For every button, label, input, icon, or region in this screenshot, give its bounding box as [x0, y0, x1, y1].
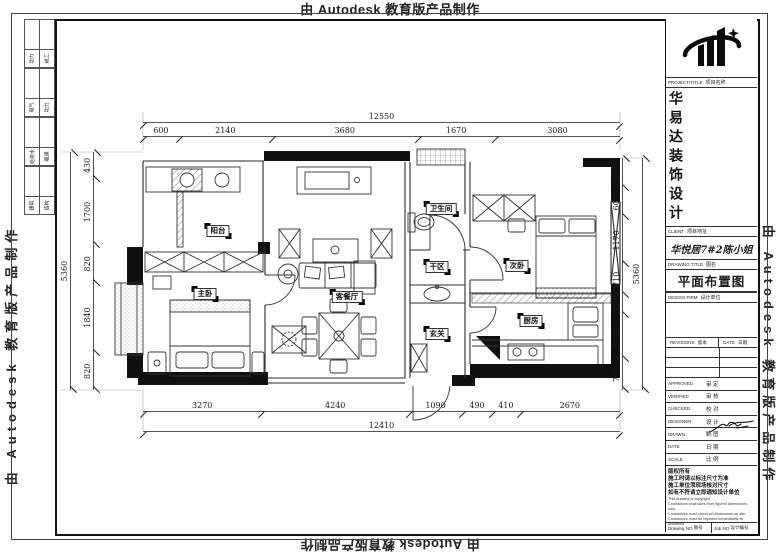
dim-segment: 600	[143, 124, 179, 137]
dim-right-segments: 710 1040 220 710 1170 600 670	[610, 158, 623, 390]
dim-segment: 1670	[418, 124, 495, 137]
design-firm-label: DESIGN FIRM设计单位	[666, 292, 757, 303]
dim-top-segments: 600 2140 3680 1670 3080	[143, 124, 620, 137]
dim-segment: 12410	[143, 419, 620, 432]
dim-segment: 2140	[179, 124, 272, 137]
dim-segment: 3680	[272, 124, 418, 137]
dim-segment: 2670	[520, 399, 620, 412]
cad-sheet: { "watermark": { "text": "由 Autodesk 教育版…	[0, 0, 780, 552]
client-name: 华悦居7#2陈小姐	[666, 237, 757, 259]
dim-segment: 220	[610, 295, 623, 315]
room-label-balcony: 阳台	[207, 225, 230, 237]
door-bathroom	[430, 215, 465, 250]
client-label: CLIENT项目地址	[666, 226, 757, 237]
nightstand	[148, 352, 166, 374]
dim-segment: 1040	[610, 315, 623, 359]
dim-segment: 410	[492, 399, 520, 412]
chair	[330, 360, 347, 373]
coffee-table	[313, 239, 358, 262]
kitchen-fixtures	[470, 303, 603, 364]
room-label-entry: 玄关	[426, 328, 449, 340]
floorplan-drawing	[0, 0, 780, 552]
dim-left-overall: 5360	[58, 152, 71, 390]
signature-row: CHECKED校 对	[666, 403, 757, 416]
second-bedroom-furniture	[470, 195, 596, 298]
revision-row	[666, 368, 757, 378]
title-block: PROJECT/TITLE项目名称 华易达装饰设计 CLIENT项目地址 华悦居…	[665, 19, 757, 532]
dim-segment: 710	[610, 359, 623, 390]
door-second-bedroom	[470, 247, 503, 280]
pillow	[569, 219, 595, 233]
pillow	[176, 352, 208, 368]
tv	[153, 276, 171, 289]
drawing-number-row: Drawing NO 图号 Job NO 设计编号	[666, 523, 757, 533]
room-label-living-dining: 客餐厅	[332, 291, 363, 303]
dim-right-overall: 5360	[630, 158, 643, 390]
chair	[361, 339, 376, 356]
dim-segment: 1170	[610, 217, 623, 264]
chair	[302, 339, 317, 356]
room-label-master-bedroom: 主卧	[194, 288, 217, 300]
revisions-header: REVISIONS 版本 DATE 日期	[666, 337, 757, 348]
designer-signature	[707, 416, 755, 436]
room-label-kitchen: 厨房	[520, 315, 543, 327]
wash-basin	[424, 287, 450, 301]
room-label-bathroom: 卫生间	[426, 203, 457, 215]
signature-rows: APPROVED审 定 VERIFIED审 核 CHECKED校 对 DESIG…	[666, 378, 757, 466]
company-logo-icon	[681, 22, 743, 74]
bay-window	[115, 283, 143, 355]
dim-segment: 3080	[495, 124, 620, 137]
pillow	[539, 219, 565, 233]
dim-segment: 430	[81, 152, 94, 179]
signature-row: DATE日 期	[666, 441, 757, 454]
chair	[302, 317, 317, 334]
room-label-dry-area: 干区	[426, 261, 449, 273]
dim-left-segments: 820 1840 820 1700 430	[81, 152, 94, 390]
side-table	[278, 264, 298, 284]
dim-segment: 1700	[81, 179, 94, 245]
room-label-second-bedroom: 次卧	[506, 260, 529, 272]
bed	[536, 216, 596, 298]
company-name: 华易达装饰设计	[666, 88, 686, 226]
balcony-sink	[215, 173, 229, 187]
dim-segment: 5360	[630, 158, 643, 390]
dim-segment: 600	[610, 188, 623, 217]
signature-row: VERIFIED审 核	[666, 391, 757, 404]
signature-row: SCALE比 例	[666, 454, 757, 467]
drawing-title-label: DRAWING TITLE图名	[666, 259, 757, 270]
dim-segment: 820	[81, 353, 94, 390]
dim-segment: 1840	[81, 283, 94, 353]
shower-area	[417, 149, 465, 165]
chaise	[354, 261, 375, 294]
revision-row	[666, 358, 757, 368]
chair	[361, 317, 376, 334]
dim-segment: 710	[610, 264, 623, 295]
pillow	[212, 352, 244, 368]
dim-bottom-segments: 3270 4240 1090 490 410 2670	[143, 399, 620, 412]
dim-bottom-overall: 12410	[143, 419, 620, 432]
door-kitchen	[470, 307, 496, 333]
company-logo	[666, 19, 757, 77]
dim-segment: 5360	[58, 152, 71, 390]
dim-segment: 3270	[143, 399, 261, 412]
toilet	[414, 214, 434, 230]
wall-pier	[177, 192, 183, 247]
dim-segment: 490	[462, 399, 492, 412]
dim-segment: 820	[81, 245, 94, 282]
copyright-notes: 版权所有 施工时请以标注尺寸为准 施工单位须现场核对尺寸 如有不符请立即通知设计…	[666, 466, 757, 523]
revision-row	[666, 348, 757, 358]
dim-segment: 1090	[409, 399, 462, 412]
nightstand	[252, 352, 264, 374]
signature-row: APPROVED审 定	[666, 378, 757, 391]
project-title-label: PROJECT/TITLE项目名称	[666, 77, 757, 88]
dim-segment: 4240	[261, 399, 409, 412]
living-dining-furniture	[272, 167, 392, 373]
dim-segment: 12550	[143, 110, 620, 123]
dim-top-overall: 12550	[143, 110, 620, 123]
dim-segment: 670	[610, 158, 623, 188]
kitchen-sink	[573, 307, 598, 322]
drawing-title: 平面布置图	[666, 270, 757, 292]
